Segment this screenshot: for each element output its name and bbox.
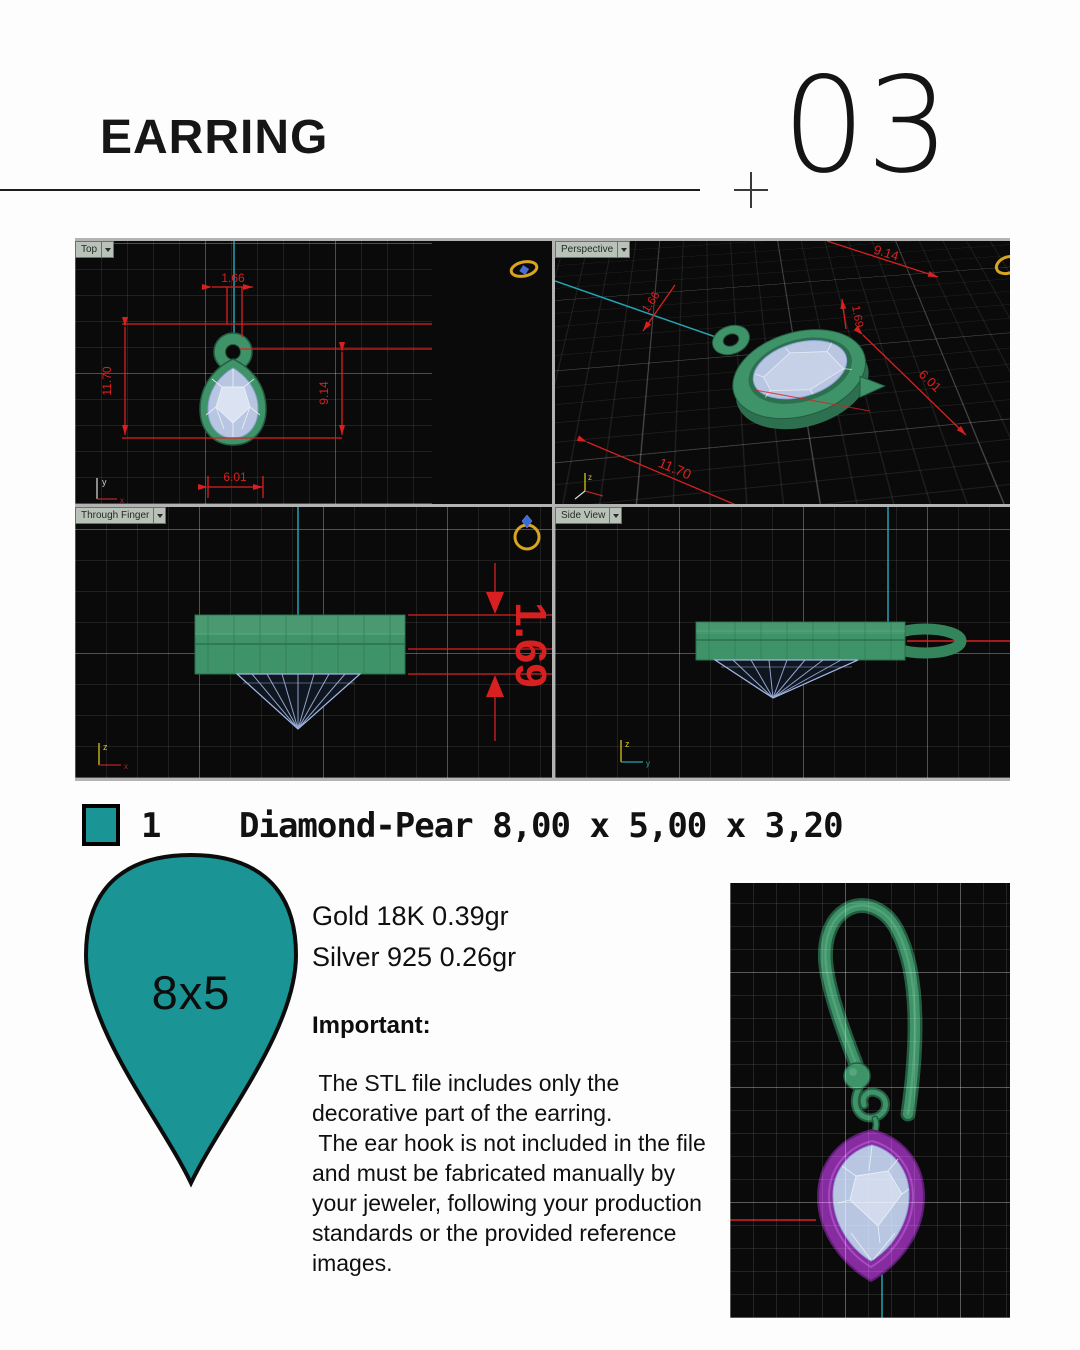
- axis-label-y: y: [102, 477, 107, 487]
- stone-size-label: 8x5: [152, 966, 231, 1019]
- tab-label: Through Finger: [81, 508, 149, 523]
- viewport-top[interactable]: Top: [75, 241, 552, 504]
- axis-label-x: x: [120, 496, 124, 504]
- material-specs: Gold 18K 0.39gr Silver 925 0.26gr: [312, 896, 516, 978]
- pear-shape: [86, 855, 296, 1183]
- gold-spec: Gold 18K 0.39gr: [312, 896, 516, 937]
- page-number: 03: [782, 60, 950, 192]
- dim-a: 9.14: [872, 242, 901, 264]
- through-finger-canvas: 1.69 z x: [75, 507, 552, 778]
- dim-width-stone: 6.01: [223, 470, 247, 484]
- header-divider: [0, 189, 700, 191]
- dim-e: 11.70: [656, 454, 694, 482]
- axis-label-z: z: [588, 473, 592, 482]
- pendant-perspective: [708, 312, 889, 444]
- legend-color-swatch: [82, 804, 120, 846]
- bezel-side-view: [696, 622, 905, 660]
- legend-count: 1: [141, 806, 161, 846]
- dim-b: 1.66: [640, 290, 662, 315]
- ring-cursor-icon: [994, 253, 1010, 276]
- cad-viewport-grid: Top: [75, 238, 1010, 781]
- plus-icon: [734, 172, 768, 208]
- axis-label-x: x: [124, 762, 128, 771]
- stone-outline-drawing: 8x5: [75, 848, 307, 1190]
- silver-spec: Silver 925 0.26gr: [312, 937, 516, 978]
- dim-height-total: 11.70: [100, 366, 114, 395]
- dimension-lines: 1.69: [408, 563, 552, 741]
- viewport-side[interactable]: Side View: [555, 507, 1010, 778]
- dim-width-top: 1.66: [221, 271, 245, 285]
- bezel-front-view: [195, 615, 405, 674]
- important-paragraph-2: The ear hook is not included in the file…: [312, 1128, 717, 1278]
- tab-perspective-view[interactable]: Perspective: [555, 241, 630, 258]
- ring-cursor-icon: [515, 515, 539, 549]
- page: EARRING 03 Top: [0, 0, 1080, 1350]
- chevron-down-icon[interactable]: [609, 508, 619, 523]
- important-heading: Important:: [312, 1012, 431, 1040]
- legend-description: Diamond-Pear 8,00 x 5,00 x 3,20: [239, 806, 843, 846]
- tab-label: Perspective: [561, 242, 613, 257]
- axis-label-z: z: [103, 742, 108, 752]
- axis-label-y: y: [646, 759, 650, 768]
- axis-gizmo: z y: [621, 739, 650, 768]
- tab-through-finger-view[interactable]: Through Finger: [75, 507, 166, 524]
- axis-gizmo: z: [575, 473, 603, 499]
- top-view-canvas: 1.66 11.70 9.14 6.01 y x: [75, 241, 552, 504]
- dim-c: 1.69: [849, 304, 865, 328]
- pendant-top-view: [200, 333, 266, 445]
- dimension-lines: [122, 287, 432, 498]
- tab-label: Top: [81, 242, 97, 257]
- chevron-down-icon[interactable]: [101, 242, 111, 257]
- gem-pavilion-wireframe: [237, 674, 360, 729]
- earring-render-panel: [730, 883, 1010, 1318]
- grid-background: [730, 883, 1010, 1318]
- axis-gizmo: z x: [99, 742, 128, 771]
- perspective-canvas: 9.14 1.66 1.69 6.01 11.70 z: [555, 241, 1010, 504]
- important-paragraph-1: The STL file includes only the decorativ…: [312, 1068, 717, 1128]
- tab-top-view[interactable]: Top: [75, 241, 114, 258]
- viewport-through-finger[interactable]: Through Finger: [75, 507, 552, 778]
- dim-height-stone: 9.14: [317, 381, 331, 405]
- ring-cursor-icon: [510, 259, 538, 278]
- tab-label: Side View: [561, 508, 605, 523]
- chevron-down-icon[interactable]: [617, 242, 627, 257]
- chevron-down-icon[interactable]: [153, 508, 163, 523]
- axis-gizmo: y x: [97, 477, 124, 504]
- gem-pavilion-wireframe: [715, 660, 858, 698]
- axis-label-z: z: [625, 739, 630, 749]
- dim-thickness: 1.69: [506, 602, 552, 688]
- viewport-perspective[interactable]: Perspective: [555, 241, 1010, 504]
- important-note: The STL file includes only the decorativ…: [312, 1068, 717, 1278]
- tab-side-view[interactable]: Side View: [555, 507, 622, 524]
- side-view-canvas: z y: [555, 507, 1010, 778]
- page-title: EARRING: [100, 110, 328, 165]
